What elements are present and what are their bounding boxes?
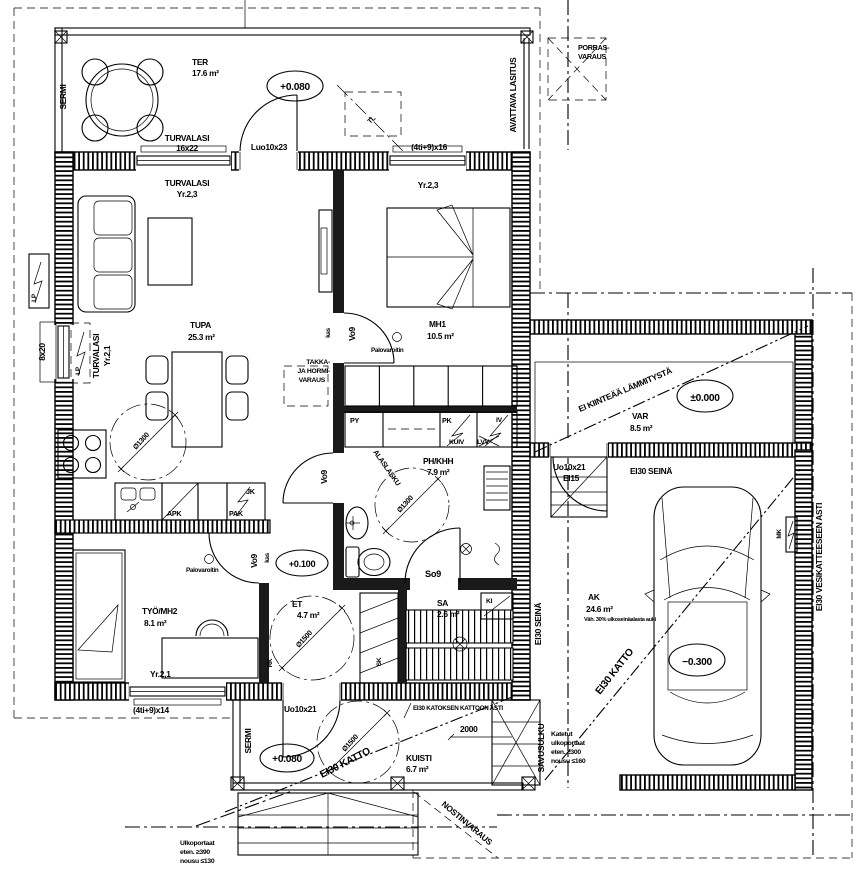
carport: AK 24.6 m² Väh. 30% ulkoseinäalasta auki… — [533, 450, 824, 790]
svg-text:+0.100: +0.100 — [289, 559, 316, 569]
svg-text:VARAUS: VARAUS — [578, 52, 607, 61]
floor-plan-svg: TL TER 17.6 m² +0.080 SERMI AVATTAVA LAS… — [0, 0, 866, 875]
svg-text:NOSTINVARAUS: NOSTINVARAUS — [440, 799, 495, 847]
room-label-tupa: TUPA — [190, 320, 211, 330]
terrace-corner-posts — [55, 31, 533, 43]
svg-text:ulkoportaat: ulkoportaat — [551, 740, 586, 747]
takka-varaus: TAKKA- JA HORMI- VARAUS — [284, 359, 330, 406]
sink-unit — [115, 483, 162, 520]
sofa — [78, 196, 135, 312]
room-tyo-mh2: Palovaroitin TYÖ/MH2 8.1 m² Yr.2,1 Vo9 k… — [73, 550, 271, 682]
side-door-steps: Uo10x21 EI15 EI30 SEINÄ — [551, 457, 672, 517]
fridge-freezer: JK PAK — [227, 483, 265, 520]
ak-open-wall-note: Väh. 30% ulkoseinäalasta auki — [584, 617, 657, 623]
svg-text:JK: JK — [246, 487, 256, 496]
porch-door-label-uo10x21: Uo10x21 — [284, 704, 317, 714]
window-label-yr21-tyo: Yr.2,1 — [150, 669, 171, 679]
savusulku-label: SAVUSULKU — [536, 723, 546, 772]
svg-text:TAKKA-: TAKKA- — [306, 359, 330, 366]
svg-text:+0.080: +0.080 — [280, 82, 310, 93]
door-label-vo9-tyo: Vo9 — [249, 553, 259, 567]
svg-text:PAK: PAK — [229, 509, 244, 518]
room-et: +0.100 ET 4.7 m² Ø1500 RK SK — [267, 550, 398, 683]
single-bed — [73, 550, 125, 682]
ei30-seina-v: EI30 SEINÄ — [533, 603, 543, 645]
svg-text:KUIV: KUIV — [449, 439, 465, 446]
room-tupa: TUPA 25.3 m² TAKKA- JA HORMI- VARAUS — [78, 196, 332, 447]
ei30-katto-ak: EI30 KATTO — [594, 646, 637, 696]
room-label-mh1: MH1 — [429, 319, 446, 329]
door-label-vo9-ph: Vo9 — [319, 469, 329, 483]
room-label-ter: TER — [192, 57, 208, 67]
svg-text:JA HORMI-: JA HORMI- — [297, 368, 330, 375]
turning-circle-ph: Ø1300 — [375, 468, 449, 542]
window-label-turvalasi-tupa: TURVALASI — [165, 178, 209, 188]
dimension-2000: 2000 — [448, 724, 512, 740]
room-area-ph: 7.9 m² — [427, 467, 450, 477]
washbasin — [346, 507, 368, 539]
svg-text:Ø1300: Ø1300 — [395, 493, 415, 514]
savusulku-steps: SAVUSULKU Katetut ulkoportaat eten. ≥300… — [492, 700, 586, 790]
room-area-var: 8.5 m² — [630, 423, 653, 433]
room-area-tupa: 25.3 m² — [188, 332, 215, 342]
coffee-table — [148, 218, 192, 285]
window-label-4ti9x14: (4ti+9)x14 — [133, 705, 170, 715]
window-label-turvalasi-16x22: TURVALASI — [165, 133, 209, 143]
svg-text:Ulkoportaat: Ulkoportaat — [180, 840, 216, 847]
svg-text:PORRAS-: PORRAS- — [578, 43, 610, 52]
level-marker-terrace: +0.080 — [267, 71, 323, 101]
window-label-turvalasi-left: TURVALASI — [91, 334, 101, 378]
room-label-tyo: TYÖ/MH2 — [142, 606, 178, 616]
sermi-label-terrace: SERMI — [58, 84, 68, 109]
door-label-luo10x23: Luo10x23 — [251, 142, 288, 152]
rk-label: RK — [267, 658, 274, 667]
nostinvaraus-box: NOSTINVARAUS — [414, 792, 498, 858]
room-area-kuisti: 6.7 m² — [406, 764, 429, 774]
floor-plan: TL TER 17.6 m² +0.080 SERMI AVATTAVA LAS… — [0, 0, 866, 875]
room-area-et: 4.7 m² — [297, 610, 320, 620]
svg-text:APK: APK — [167, 509, 182, 518]
svg-text:−0.300: −0.300 — [682, 657, 712, 668]
room-label-et: ET — [292, 599, 303, 609]
svg-text:nousu ≤130: nousu ≤130 — [180, 858, 215, 865]
room-label-sa: SA — [437, 598, 448, 608]
door-kas-mh1: kas — [325, 327, 332, 337]
room-label-var: VAR — [632, 411, 648, 421]
level-marker-var: ±0.000 — [677, 380, 733, 412]
room-sauna: KI SA 2.6 m² — [406, 593, 513, 680]
outdoor-stairs-note: Ulkoportaat eten. ≥390 nousu ≤130 — [180, 840, 216, 865]
ei30-seina-h: EI30 SEINÄ — [630, 466, 672, 476]
door-label-so9: So9 — [425, 569, 441, 579]
svg-text:2000: 2000 — [460, 724, 478, 734]
sermi-label-porch: SERMI — [243, 728, 253, 753]
module-lines — [125, 0, 852, 858]
room-ph-khh: PY PK KUIV IV LVV — [319, 412, 517, 579]
svg-text:MK: MK — [776, 529, 783, 539]
svg-text:nousu ≤160: nousu ≤160 — [551, 758, 586, 765]
svg-text:±0.000: ±0.000 — [690, 393, 720, 404]
door-label-vo9-mh1: Vo9 — [347, 326, 357, 340]
room-label-kuisti: KUISTI — [406, 753, 432, 763]
level-marker-ak: −0.300 — [669, 644, 725, 676]
terrace-table-set — [82, 59, 163, 141]
door-label-ei15: EI15 — [563, 473, 580, 483]
shower-mixer-symbol — [494, 543, 499, 565]
smoke-detector-tyo — [205, 555, 214, 564]
svg-text:PY: PY — [350, 416, 359, 425]
dishwasher: APK — [162, 483, 198, 520]
svg-text:LP: LP — [31, 294, 38, 302]
closet-sk: SK — [360, 593, 398, 683]
dining-set — [146, 352, 248, 447]
wardrobes-mh1 — [345, 366, 517, 406]
avattava-lasitus-label: AVATTAVA LASITUS — [508, 57, 518, 133]
lp-symbol-1: LP — [29, 254, 49, 308]
toilet — [346, 547, 390, 577]
svg-text:SK: SK — [376, 657, 383, 666]
floor-drain — [461, 544, 472, 555]
window-label-yr23-tupa: Yr.2,3 — [177, 189, 198, 199]
window-label-4ti9x16: (4ti+9)x16 — [411, 142, 448, 152]
svg-text:Ø1300: Ø1300 — [131, 430, 151, 451]
mk-symbol: MK — [776, 517, 797, 552]
door-label-uo10x21-side: Uo10x21 — [553, 462, 586, 472]
svg-text:KI: KI — [486, 598, 493, 605]
svg-text:Katetut: Katetut — [551, 731, 573, 738]
kitchen-cabinet — [198, 483, 227, 520]
window-label-8x20: 8x20 — [37, 343, 47, 361]
svg-text:eten. ≥300: eten. ≥300 — [551, 749, 581, 756]
svg-text:eten. ≥390: eten. ≥390 — [180, 849, 210, 856]
svg-text:IV: IV — [496, 417, 503, 424]
ei30-vesikate-label: EI30 VESIKATTEESEEN ASTI — [814, 503, 824, 611]
outdoor-stairs: Ulkoportaat eten. ≥390 nousu ≤130 — [180, 793, 418, 865]
room-area-ak: 24.6 m² — [586, 604, 613, 614]
kitchen: APK JK PAK Ø1300 — [58, 404, 265, 520]
turning-circle-kitchen: Ø1300 — [110, 404, 186, 480]
radiator — [484, 466, 510, 510]
turning-circle-et: Ø1500 — [270, 596, 354, 680]
level-marker-porch: +0.080 — [260, 744, 314, 772]
desk — [162, 620, 258, 678]
porras-varaus-box: PORRAS- VARAUS — [548, 38, 610, 100]
svg-text:VARAUS: VARAUS — [299, 377, 326, 384]
room-area-mh1: 10.5 m² — [427, 331, 454, 341]
room-area-ter: 17.6 m² — [192, 68, 219, 78]
room-area-sa: 2.6 m² — [437, 609, 460, 619]
tv-bench — [319, 210, 332, 292]
svg-text:PK: PK — [442, 416, 452, 425]
window-label-yr23-mh1: Yr.2,3 — [418, 180, 439, 190]
room-var: EI KIINTEÄÄ LÄMMITYSTÄ VAR 8.5 m² ±0.000 — [530, 320, 812, 458]
ei-kiintea-label: EI KIINTEÄÄ LÄMMITYSTÄ — [577, 365, 674, 414]
smoke-detector-label-tyo: Palovaroitin — [186, 567, 219, 574]
ei30-katos-note: EI30 KATOKSEN KATTOON ASTI — [404, 703, 503, 718]
level-marker-entry: +0.100 — [276, 550, 328, 576]
window-label-yr21-left: Yr.2,1 — [102, 345, 112, 366]
smoke-detector-label-mh1: Palovaroitin — [371, 347, 404, 354]
room-label-ph: PH/KHH — [423, 456, 454, 466]
svg-text:LVV: LVV — [477, 439, 490, 446]
alaslasku-label: ALASLASKU — [371, 448, 402, 487]
smoke-detector-mh1 — [393, 333, 402, 342]
svg-text:+0.080: +0.080 — [272, 754, 302, 765]
door-kas-tyo: kas — [264, 552, 271, 562]
room-area-tyo: 8.1 m² — [144, 618, 167, 628]
svg-text:LP: LP — [75, 367, 82, 375]
room-terrace: TL TER 17.6 m² +0.080 SERMI AVATTAVA LAS… — [55, 28, 610, 165]
double-bed — [387, 205, 510, 309]
svg-text:EI30 KATOKSEN KATTOON ASTI: EI30 KATOKSEN KATTOON ASTI — [413, 705, 503, 712]
room-label-ak: AK — [588, 592, 600, 602]
utility-appliance-row: PY PK KUIV IV LVV — [345, 412, 517, 447]
